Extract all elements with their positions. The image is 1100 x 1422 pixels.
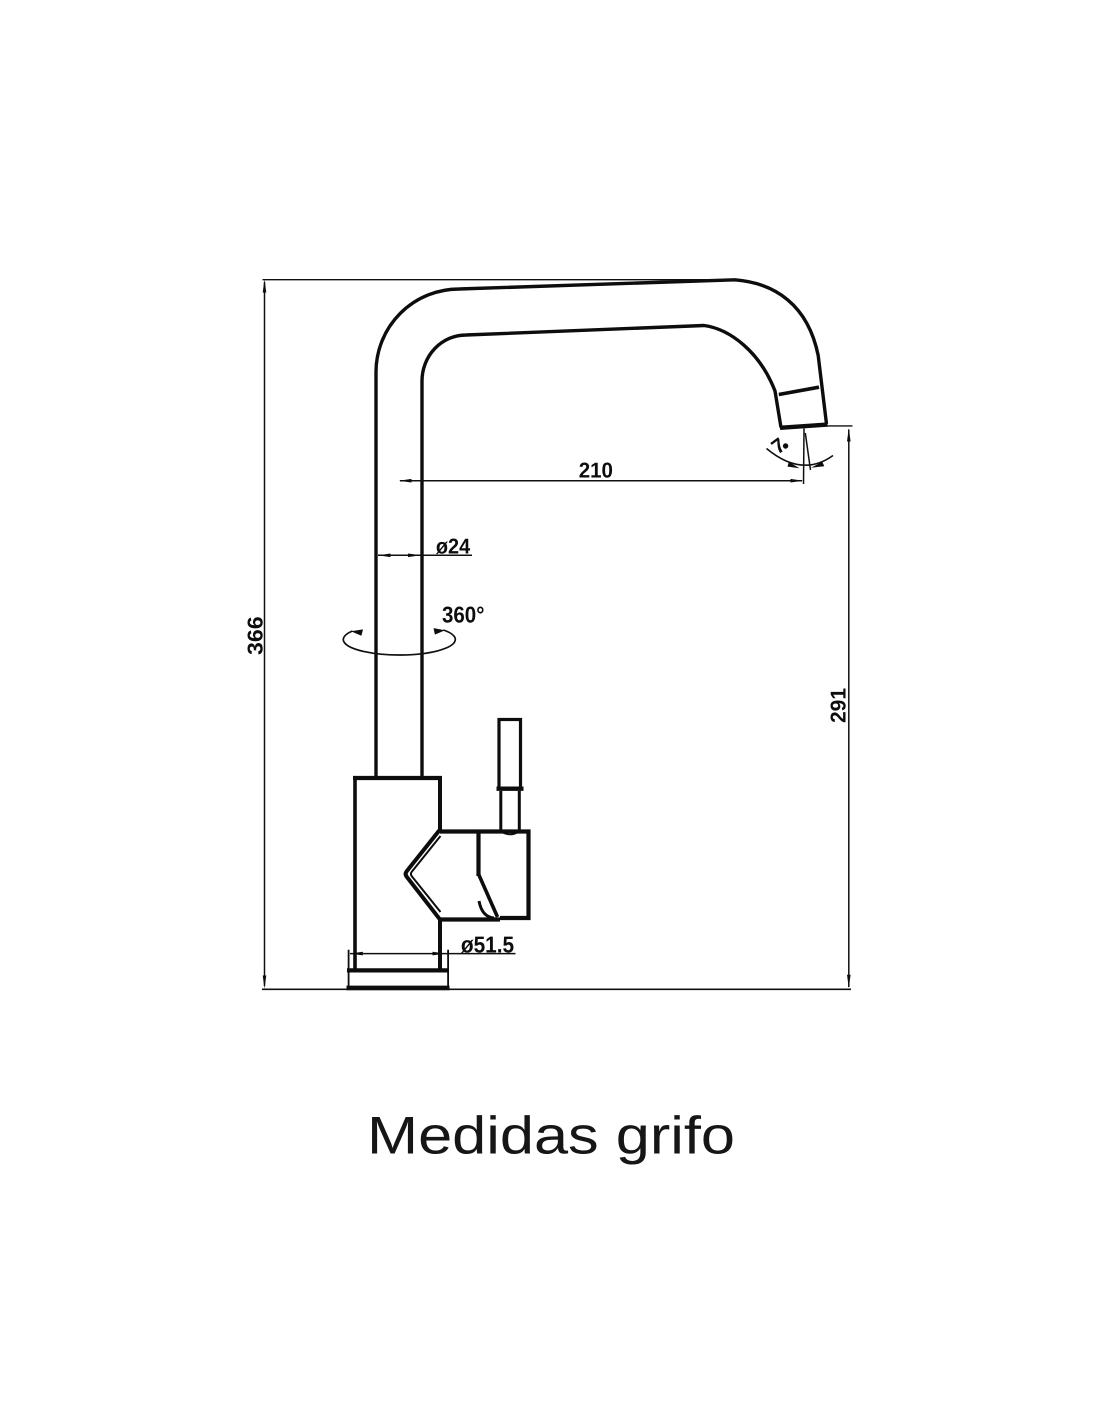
svg-text:291: 291 bbox=[827, 688, 851, 723]
svg-text:ø51.5: ø51.5 bbox=[461, 932, 514, 958]
svg-text:ø24: ø24 bbox=[436, 535, 470, 559]
svg-text:366: 366 bbox=[244, 616, 268, 655]
svg-text:Medidas grifo: Medidas grifo bbox=[367, 1106, 735, 1165]
svg-text:360°: 360° bbox=[442, 602, 485, 628]
svg-text:210: 210 bbox=[579, 459, 613, 483]
